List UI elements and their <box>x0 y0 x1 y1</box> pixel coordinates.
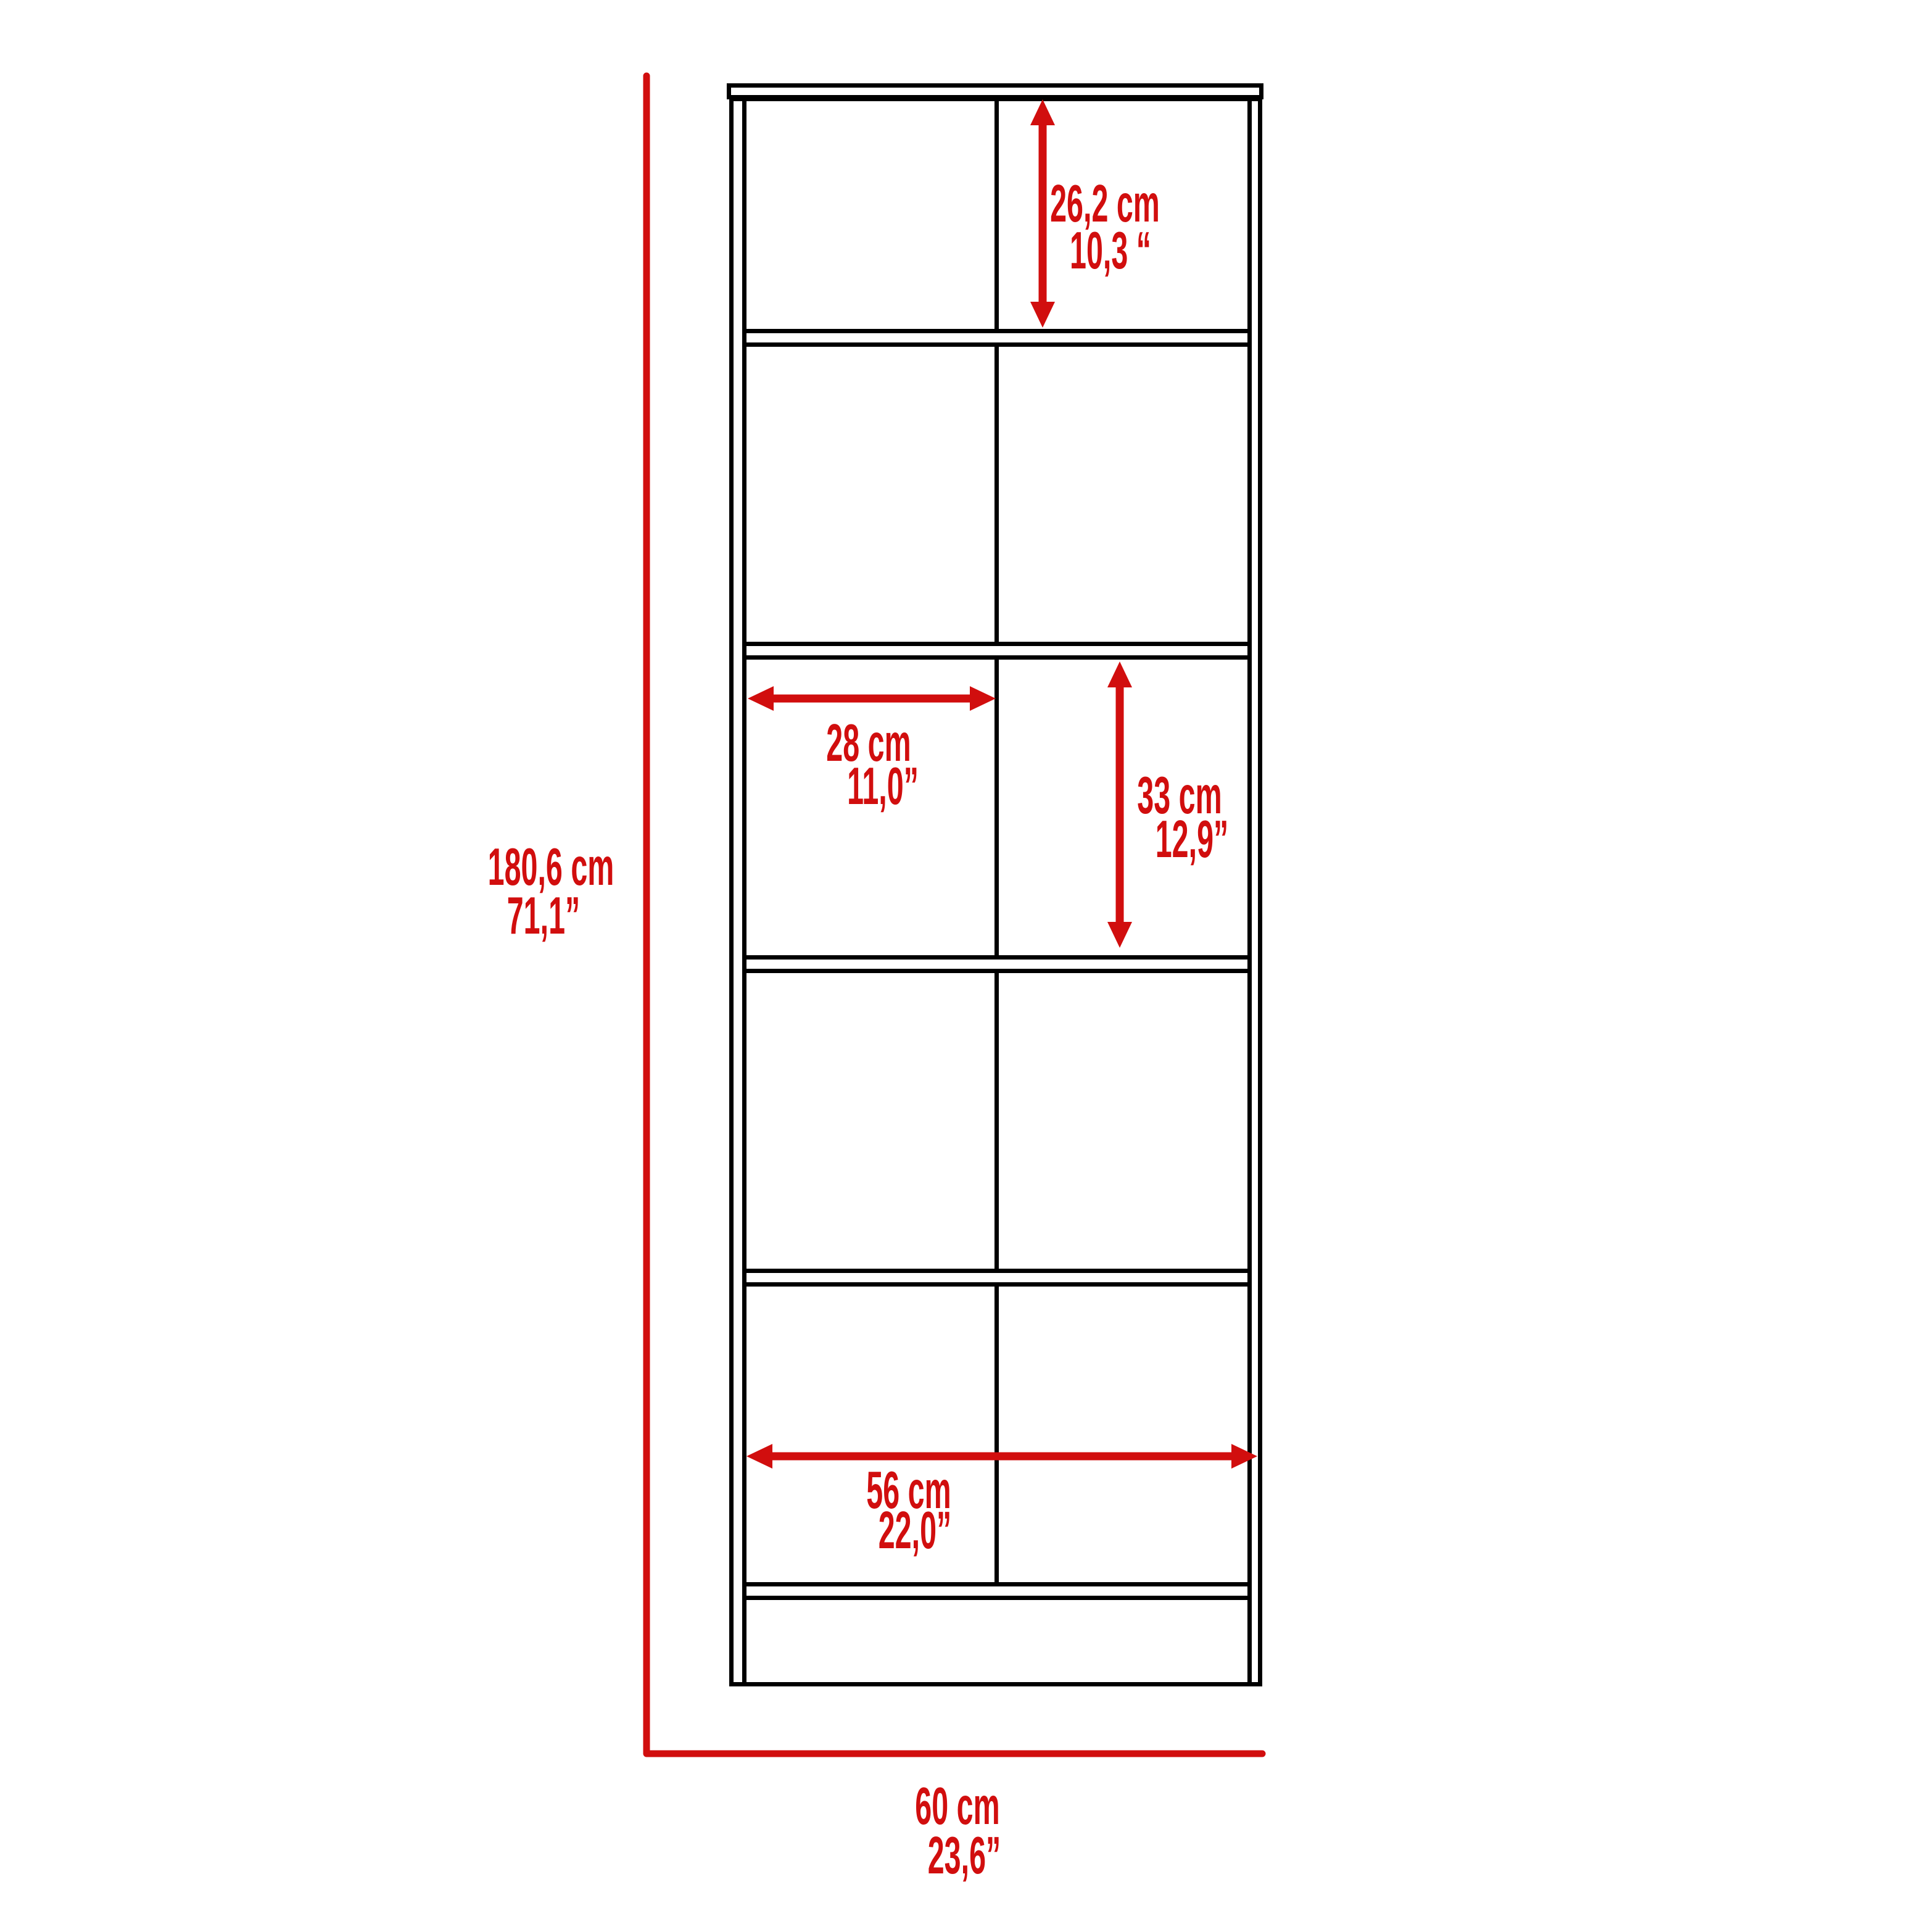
label-overall-width-cm: 60 cm <box>817 1780 1098 1833</box>
label-overall-height-cm: 180,6 cm <box>410 841 692 893</box>
shelf-board-2 <box>742 644 1252 658</box>
shelf-board-4 <box>742 1271 1252 1285</box>
bookcase-line-drawing <box>0 0 1931 1932</box>
arrow-shelf-width <box>748 686 996 711</box>
label-shelf-height-inch: 12,9” <box>1051 813 1333 866</box>
dimension-diagram: 26,2 cm 10,3 “ 28 cm 11,0” 33 cm 12,9” 5… <box>0 0 1931 1932</box>
label-overall-height-inch: 71,1” <box>403 890 684 942</box>
label-top-shelf-height-inch: 10,3 “ <box>970 225 1251 277</box>
cabinet-outline <box>729 86 1262 1685</box>
cabinet-top-board <box>729 86 1262 97</box>
shelf-board-1 <box>742 331 1252 345</box>
label-shelf-width-inch: 11,0” <box>742 760 1023 813</box>
label-inner-width-inch: 22,0” <box>774 1504 1056 1557</box>
label-overall-width-inch: 23,6” <box>824 1830 1105 1882</box>
shelf-board-3 <box>742 958 1252 971</box>
shelf-board-5 <box>742 1585 1252 1598</box>
